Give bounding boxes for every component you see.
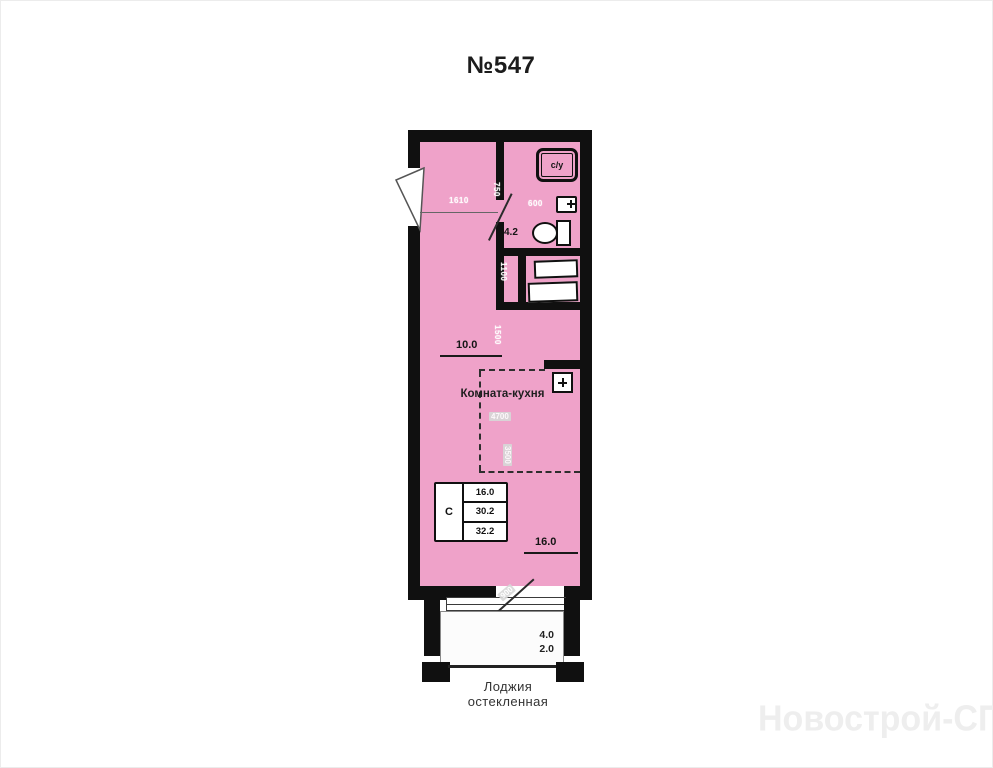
wall-right [580,130,592,600]
bathroom-label: с/у [551,160,564,170]
toilet-tank-icon [556,220,571,246]
apartment-type-cell: С [436,484,464,540]
plan-title: №547 [408,52,594,80]
kitchen-depth-dimension: 3500 [503,444,512,466]
wardrobe-shelf-top [534,259,579,279]
hall-dimension-line [420,212,498,213]
toilet-bowl-icon [532,222,558,244]
room-label: Комната-кухня [425,388,580,400]
room-width-dimension: 10.0 [456,339,477,351]
loggia-label-line2: остекленная [420,694,596,709]
watermark: Новострой-СПб [758,699,986,740]
hall-width-dimension: 1610 [449,196,469,205]
wall-closet-bottom [496,302,580,310]
wardrobe-shelf-bottom [528,281,579,303]
entry-door-icon [393,163,427,233]
loggia-area-coeff-value: 2.0 [528,643,554,655]
kitchen-width-dimension: 4700 [489,412,511,421]
apartment-area-value: 30.2 [464,503,506,522]
loggia-wall-left [424,598,440,656]
loggia-label-line1: Лоджия [420,679,596,694]
bathroom-door-dimension: 750 [492,182,501,197]
washbasin-dimension: 600 [528,199,543,208]
area-stats-table: С 16.0 30.2 32.2 [434,482,508,542]
kitchen-zone-dashed-bottom [479,471,580,473]
wall-top [408,130,592,142]
wall-bathroom-bottom [496,248,580,256]
room-length-dimension-line [524,552,578,554]
living-area-value: 16.0 [464,484,506,503]
loggia-area-full-value: 4.0 [528,629,554,641]
room-width-dimension-line [440,355,502,357]
shower-cabin: с/у [536,148,578,182]
loggia-glazing-line [448,665,556,668]
kitchen-zone-dashed-top [479,369,545,371]
floorplan-page: №547 1610 750 с/у 600 4.2 1100 10.0 1500 [0,0,993,768]
room-wall-dimension: 1500 [493,325,502,345]
wall-left-lower [408,226,420,600]
area-stats-column: 16.0 30.2 32.2 [464,484,506,540]
kitchen-sink-plus-icon [557,377,568,388]
total-area-value: 32.2 [464,523,506,540]
kitchen-zone-dashed-left [479,371,481,471]
loggia-wall-right [564,598,580,656]
washbasin-plus-icon [566,199,576,209]
room-length-dimension: 16.0 [535,536,556,548]
wall-kitchen-stub [544,360,580,369]
closet-dimension: 1100 [499,262,508,281]
bathroom-area-value: 4.2 [504,227,518,238]
